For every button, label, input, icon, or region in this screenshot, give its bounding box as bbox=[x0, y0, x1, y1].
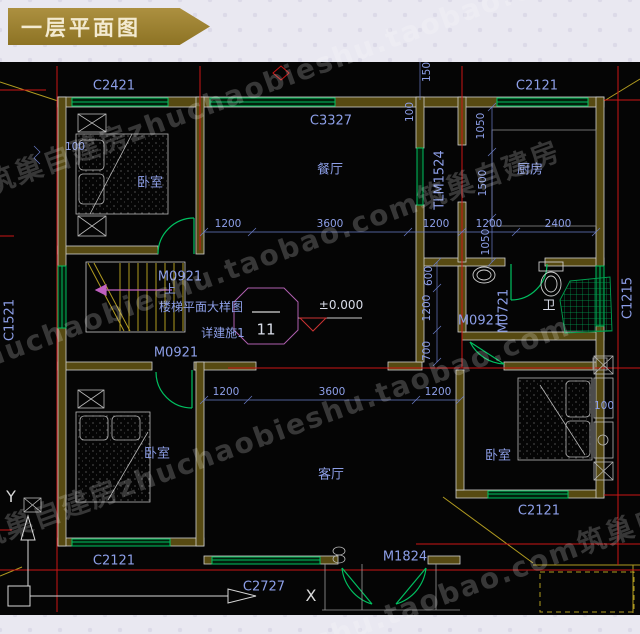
room-label-kitchen: 厨房 bbox=[517, 164, 543, 177]
dim-top-2400: 2400 bbox=[545, 219, 572, 230]
level-label: ±0.000 bbox=[319, 299, 363, 311]
stair-direction-arrow bbox=[96, 285, 172, 295]
dim-top-1200b: 1200 bbox=[423, 219, 450, 230]
door-label-m0721: M0721 bbox=[498, 289, 511, 333]
doors bbox=[156, 218, 547, 604]
window-label-c2121-br: C2121 bbox=[518, 505, 560, 518]
floor-plan-drawing bbox=[0, 0, 640, 634]
dim-kitchen-1050a: 1050 bbox=[476, 113, 487, 140]
dim-mid-1200a: 1200 bbox=[213, 387, 240, 398]
detail-bubble-number: 11 bbox=[256, 323, 275, 338]
page-title: 一层平面图 bbox=[8, 12, 141, 42]
dim-kitchen-1050b: 1050 bbox=[481, 229, 492, 256]
dim-bed-100-left: 100 bbox=[65, 142, 85, 153]
window-label-c2421: C2421 bbox=[93, 80, 135, 93]
door-label-m1824: M1824 bbox=[383, 551, 427, 564]
title-banner: 一层平面图 bbox=[8, 8, 210, 45]
door-label-tlm1524: TLM1524 bbox=[434, 150, 447, 209]
dim-corridor-600: 600 bbox=[424, 266, 435, 286]
door-label-m0921-bath: M0921 bbox=[458, 315, 502, 328]
window-label-c1521: C1521 bbox=[4, 299, 17, 341]
dim-mid-1200b: 1200 bbox=[425, 387, 452, 398]
level-marker bbox=[234, 288, 362, 344]
room-label-bath: 卫 bbox=[542, 300, 555, 313]
dim-mid-3600: 3600 bbox=[319, 387, 346, 398]
dim-top-150: 150 bbox=[422, 62, 433, 82]
dim-corridor-1200: 1200 bbox=[422, 295, 433, 322]
room-label-living: 客厅 bbox=[318, 469, 344, 482]
room-label-bedroom-br: 卧室 bbox=[485, 450, 511, 463]
room-label-dining: 餐厅 bbox=[317, 164, 343, 177]
window-label-c3327: C3327 bbox=[310, 115, 352, 128]
window-label-c1215: C1215 bbox=[622, 277, 635, 319]
stair-ref-note: 详建施1 bbox=[201, 327, 245, 339]
dim-top-100: 100 bbox=[405, 102, 416, 122]
dim-top-3600: 3600 bbox=[317, 219, 344, 230]
dim-kitchen-1500: 1500 bbox=[478, 170, 489, 197]
dim-corridor-700: 700 bbox=[422, 341, 433, 361]
axis-x-label: X bbox=[306, 588, 317, 604]
dim-top-1200a: 1200 bbox=[215, 219, 242, 230]
window-label-c2121-top: C2121 bbox=[516, 80, 558, 93]
room-label-bedroom-bl: 卧室 bbox=[144, 448, 170, 461]
room-label-bedroom-tl: 卧室 bbox=[137, 177, 163, 190]
window-label-c2727: C2727 bbox=[243, 581, 285, 594]
axis-y-label: Y bbox=[6, 489, 16, 505]
stair-detail-note: 楼梯平面大样图 bbox=[159, 301, 243, 313]
dim-bed-100-right: 100 bbox=[594, 401, 614, 412]
stair-up-label: 上 bbox=[164, 283, 176, 295]
window-label-c2121-bl: C2121 bbox=[93, 555, 135, 568]
floor-plan-page: 一层平面图 C2421 C2121 C3327 C1521 C1215 C212… bbox=[0, 0, 640, 634]
door-label-m0921-bedroom: M0921 bbox=[154, 347, 198, 360]
